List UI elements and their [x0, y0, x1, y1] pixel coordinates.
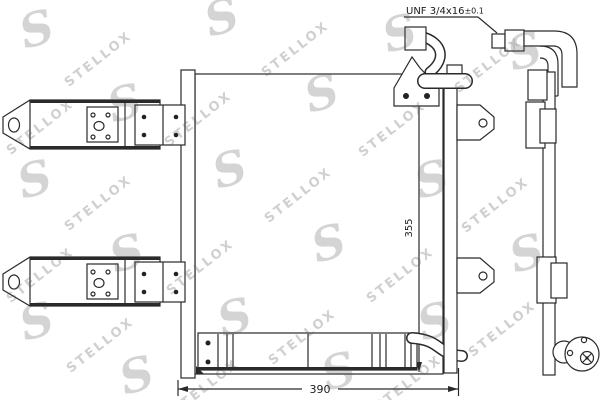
- unf-callout-label: UNF 3/4x16±0.1: [406, 6, 484, 17]
- receiver-drier-tube: [444, 85, 457, 373]
- arrow-left-icon: [178, 386, 188, 392]
- bottom-tank: [198, 333, 417, 370]
- dimension-height-label: 355: [404, 218, 415, 237]
- bracket-mount-plate: [135, 105, 185, 145]
- bracket-hole: [424, 93, 430, 99]
- flange-bolt-hole: [567, 350, 572, 355]
- tank-hole: [206, 360, 211, 365]
- condenser-technical-drawing: 355: [0, 0, 600, 400]
- fitting-nut-large: [505, 30, 524, 51]
- side-view: [526, 70, 599, 375]
- drier-top-cap: [447, 65, 462, 74]
- arrow-right-icon: [448, 386, 458, 392]
- bracket-hole: [403, 93, 409, 99]
- bracket-slot-hole: [9, 118, 20, 132]
- callout-leader-line: [478, 17, 497, 33]
- thread-tolerance: ±0.1: [464, 7, 483, 16]
- drawing-canvas: 355: [0, 0, 600, 400]
- mounting-bracket-lower: [3, 257, 185, 306]
- thread-spec: UNF 3/4x16: [406, 6, 464, 17]
- inlet-fitting-block: [405, 27, 426, 50]
- dimension-width-label: 390: [310, 383, 331, 396]
- connector-flange: [553, 337, 599, 371]
- drier-bracket-tab-lower: [457, 258, 494, 293]
- mounting-bracket-upper: [3, 100, 185, 149]
- side-clip-top: [528, 70, 547, 100]
- drier-bracket-tab-upper: [457, 105, 494, 140]
- fitting-nut-small: [492, 34, 505, 48]
- flange-port-symbol: [581, 352, 594, 365]
- flange-bolt-hole: [581, 337, 586, 342]
- tank-hole: [206, 341, 211, 346]
